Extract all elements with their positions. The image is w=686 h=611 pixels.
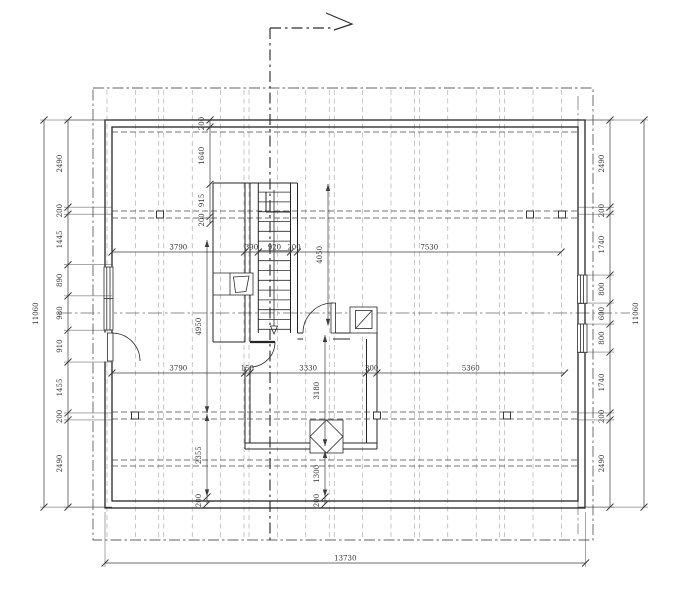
dim-label: 600 — [598, 307, 606, 320]
chimney — [310, 420, 343, 453]
dim-label: 390 — [245, 244, 258, 252]
dim-label: 7530 — [420, 244, 438, 252]
column — [559, 211, 566, 218]
dim-label: 3330 — [299, 365, 317, 373]
dim-label: 200 — [195, 494, 203, 507]
right-window-blank-1 — [577, 275, 588, 305]
dim-label: 2490 — [598, 455, 606, 473]
dim-arrow-icon — [205, 414, 209, 421]
dim-label: 11060 — [32, 302, 40, 324]
exterior-walls — [105, 120, 585, 508]
mid-room-door-swing-arc — [303, 303, 333, 333]
dimension-layer: 1106024902001445890980910145520024902490… — [32, 117, 648, 568]
dim-label: 800 — [598, 331, 606, 344]
roof-outline — [93, 88, 593, 540]
dim-label: 1455 — [56, 379, 64, 397]
shaft-left-stubs — [213, 273, 230, 295]
dim-arrow-icon — [323, 335, 327, 342]
column — [157, 211, 164, 218]
dim-label: 200 — [198, 117, 206, 130]
dim-label: 11060 — [632, 302, 640, 324]
left-door-blank — [103, 333, 115, 362]
dim-label: 980 — [56, 306, 64, 319]
right-window-blank-2 — [577, 324, 588, 354]
dim-label: 3790 — [169, 365, 187, 373]
floor-plan-drawing: 1106024902001445890980910145520024902490… — [0, 0, 686, 611]
dim-left-overall: 11060 — [32, 117, 112, 511]
dim-label: 200 — [56, 410, 64, 423]
dim-right-overall: 11060 — [578, 117, 648, 511]
dim-label: 2490 — [56, 155, 64, 173]
dim-label: 200 — [56, 204, 64, 217]
dim-label: 3790 — [169, 244, 187, 252]
exterior-wall-outer — [105, 120, 585, 508]
dim-arrow-icon — [326, 319, 330, 326]
dim-label: 2355 — [195, 446, 203, 464]
interior-doors — [250, 303, 336, 367]
dim-label: 915 — [198, 194, 206, 207]
dim-label: 200 — [287, 244, 300, 252]
dim-label: 200 — [313, 494, 321, 507]
dim-arrow-icon — [205, 240, 209, 247]
dim-label: 5360 — [462, 365, 480, 373]
dim-arrow-icon — [326, 184, 330, 191]
dim-label: 200 — [198, 213, 206, 226]
dim-label: 4050 — [316, 246, 324, 264]
dim-row-upper: 37903909202007530 — [109, 244, 565, 256]
dim-label: 300 — [365, 365, 378, 373]
column — [504, 412, 511, 419]
dim-label: 1740 — [598, 374, 606, 392]
dim-right-chain: 2490200174080060080017402002490 — [578, 117, 614, 511]
column — [132, 412, 139, 419]
knee-wall-upper — [112, 211, 578, 218]
mid-room-top-wall — [298, 333, 351, 339]
dim-label: 1640 — [198, 147, 206, 165]
staircase — [258, 190, 290, 334]
stair-right-wall — [258, 183, 297, 333]
dim-left-mid-room: 4950 — [195, 240, 209, 413]
left-door-swing-arc — [112, 333, 140, 361]
dim-label: 2490 — [56, 455, 64, 473]
stair-down-arrow-icon — [271, 326, 278, 334]
chimney-box — [310, 420, 343, 453]
section-cut-marker — [270, 13, 352, 540]
dim-bottom-overall: 13730 — [102, 512, 590, 567]
mid-room-door-leaf — [331, 303, 336, 333]
floor-plan-canvas: 1106024902001445890980910145520024902490… — [0, 0, 686, 611]
dim-stair-top-chain: 2001640915200 — [198, 117, 214, 227]
dim-label: 3180 — [313, 382, 321, 400]
dim-label: 1300 — [313, 465, 321, 483]
dim-label: 800 — [598, 282, 606, 295]
column — [374, 412, 381, 419]
dim-row-lower: 379015033303005360 — [109, 365, 569, 377]
stair-hall-walls — [213, 183, 298, 342]
column — [527, 211, 534, 218]
stair-door-swing-arc — [250, 342, 275, 367]
dim-label: 13730 — [334, 555, 356, 563]
dim-label: 2490 — [598, 155, 606, 173]
dim-label: 1740 — [598, 236, 606, 254]
dim-label: 200 — [598, 204, 606, 217]
columns — [132, 211, 566, 419]
centerlines — [58, 96, 630, 534]
dim-label: 150 — [241, 365, 254, 373]
exterior-wall-inner — [112, 127, 578, 501]
duct-shafts — [213, 273, 377, 333]
dim-label: 910 — [56, 339, 64, 352]
dim-label: 4950 — [195, 318, 203, 336]
dim-label: 920 — [268, 244, 281, 252]
openings — [103, 267, 588, 362]
dim-label: 1445 — [56, 231, 64, 249]
dim-left-lower-room: 2355 — [195, 414, 209, 496]
dim-label: 890 — [56, 274, 64, 287]
dim-label: 200 — [598, 410, 606, 423]
dim-chimney-offset: 1300 — [313, 451, 327, 497]
